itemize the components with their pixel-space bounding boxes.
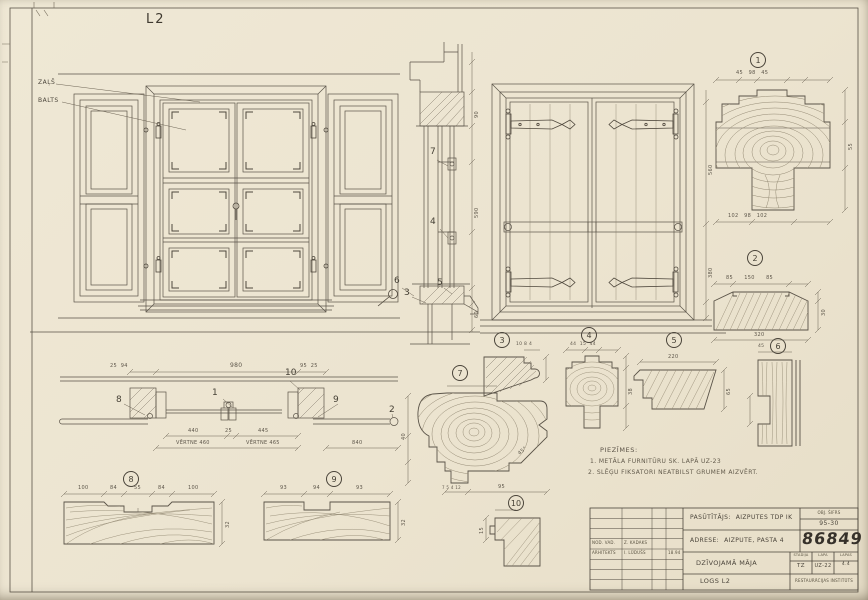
- object-code-value: 95-30: [802, 521, 856, 527]
- dim-d4-side: 38: [629, 388, 634, 395]
- titleblock-address-row: ADRESE: AIZPUTE, PASTA 4: [690, 538, 796, 544]
- dim-d8-3: 84: [158, 486, 165, 491]
- drawing-title: LOGS L2: [700, 578, 730, 585]
- dim-d2-side: 30: [822, 309, 827, 316]
- dim-d1-top: 45 98 45: [736, 71, 768, 76]
- dim-d9-2: 93: [356, 486, 363, 491]
- dim-d2-bottom: 320: [754, 333, 764, 338]
- sheets-label: LAPAS: [834, 554, 858, 558]
- dim-d1-side: 55: [849, 143, 854, 150]
- sheet-label: LAPA: [812, 554, 834, 558]
- paint-label-white: BALTS: [38, 98, 59, 104]
- signer-1-role: NOD. VAD.: [592, 541, 615, 545]
- dim-d8-0: 100: [78, 486, 88, 491]
- client-value: AIZPUTES TDP IK: [736, 515, 793, 521]
- dim-plan-shutter: 840: [352, 441, 362, 446]
- dim-d5-side: 65: [727, 388, 732, 395]
- stage-label: STADIJA: [790, 554, 812, 558]
- dim-d3: 10 8 4: [516, 343, 532, 348]
- dim-d1-bottom: 102 98 102: [728, 214, 767, 219]
- dim-d8-2: 55: [134, 486, 141, 491]
- sheet-number: UZ-22: [812, 564, 834, 569]
- organization: RESTAURĀCIJAS INSTITŪTS: [792, 579, 856, 583]
- dim-d5-top: 220: [668, 355, 678, 360]
- notes-line-1: 1. METĀLA FURNITŪRU SK. LAPĀ UZ-23: [590, 459, 721, 465]
- drawing-sheet: L2 ZAĻŠ BALTS 1 2 3 4 5 6 7 8 9 10 7 4 5…: [0, 0, 868, 600]
- dim-elev-lower: 380: [709, 268, 714, 278]
- dim-d8-4: 100: [188, 486, 198, 491]
- dim-d7-bottom: 95: [498, 485, 505, 490]
- dim-plan-small-right: 95 25: [300, 364, 318, 369]
- dim-d8-1: 84: [110, 486, 117, 491]
- detail-5-bubble: 5: [666, 332, 682, 348]
- dim-d6-top: 45: [758, 345, 764, 350]
- titleblock-client-row: PASŪTĪTĀJS: AIZPUTES TDP IK: [690, 515, 796, 521]
- signer-2-date: 18.94: [668, 551, 680, 555]
- client-label: PASŪTĪTĀJS:: [690, 515, 731, 521]
- dim-plan-center: 25: [225, 429, 232, 434]
- ref-7: 7: [430, 147, 436, 157]
- dim-elev-upper: 560: [709, 165, 714, 175]
- object-code-label: OBJ. ŠIFRS: [802, 511, 856, 515]
- dim-d7-small: 7 5 4 12: [442, 486, 461, 490]
- dim-sec-top: 90: [475, 111, 480, 118]
- sheets-total: 4.4: [834, 563, 858, 568]
- ref-5: 5: [437, 278, 443, 288]
- dim-plan-sash-left: VĒRTNE 460: [176, 441, 210, 446]
- paint-label-green: ZAĻŠ: [38, 80, 55, 86]
- signer-2-name: I. LŪDUŠS: [624, 551, 646, 555]
- ref-10: 10: [285, 368, 296, 378]
- dim-d8-depth: 32: [226, 521, 231, 528]
- ref-9: 9: [333, 395, 339, 405]
- dim-plan-total: 980: [230, 363, 242, 369]
- address-label: ADRESE:: [690, 538, 719, 544]
- ref-8: 8: [116, 395, 122, 405]
- detail-9-bubble: 9: [326, 471, 342, 487]
- ref-2: 2: [389, 405, 395, 415]
- detail-4-bubble: 4: [581, 327, 597, 343]
- detail-3-bubble: 3: [494, 332, 510, 348]
- detail-2-bubble: 2: [747, 250, 763, 266]
- dim-plan-left: 440: [188, 429, 198, 434]
- dim-d9-1: 94: [313, 486, 320, 491]
- detail-6-bubble: 6: [770, 338, 786, 354]
- ref-1: 1: [212, 388, 218, 398]
- drawing-linework: [0, 0, 868, 600]
- signer-2-role: ARHITEKTS: [592, 551, 616, 555]
- dim-sec-mid: 590: [475, 208, 480, 218]
- notes-heading: PIEZĪMES:: [600, 447, 638, 454]
- detail-7-bubble: 7: [452, 365, 468, 381]
- building-name: DZĪVOJAMĀ MĀJA: [696, 560, 757, 567]
- address-value: AIZPUTE, PASTA 4: [724, 538, 784, 544]
- detail-1-bubble: 1: [750, 52, 766, 68]
- sheet-code: L2: [146, 13, 166, 26]
- dim-d9-0: 93: [280, 486, 287, 491]
- stage-value: TZ: [790, 564, 812, 570]
- dim-d10-side: 15: [480, 527, 485, 534]
- dim-d7-side: 40: [402, 433, 407, 440]
- dim-d4-top: 44 15 44: [570, 343, 596, 348]
- dim-d2-top: 85 150 85: [726, 276, 773, 281]
- ref-4: 4: [430, 217, 436, 227]
- project-number: 86849: [801, 531, 857, 547]
- dim-d9-depth: 32: [402, 519, 407, 526]
- dim-plan-right: 445: [258, 429, 268, 434]
- detail-10-bubble: 10: [508, 495, 524, 511]
- dim-sec-bottom: 60: [475, 311, 480, 318]
- ref-3: 3: [404, 288, 410, 298]
- ref-6: 6: [394, 276, 400, 286]
- dim-plan-small-left: 25 94: [110, 364, 128, 369]
- signer-1-name: Z. KADAKS: [624, 541, 647, 545]
- dim-plan-sash-right: VĒRTNE 465: [246, 441, 280, 446]
- notes-line-2: 2. SLĒĢU FIKSATORI NEATBILST GRUMEM AIZV…: [588, 470, 758, 476]
